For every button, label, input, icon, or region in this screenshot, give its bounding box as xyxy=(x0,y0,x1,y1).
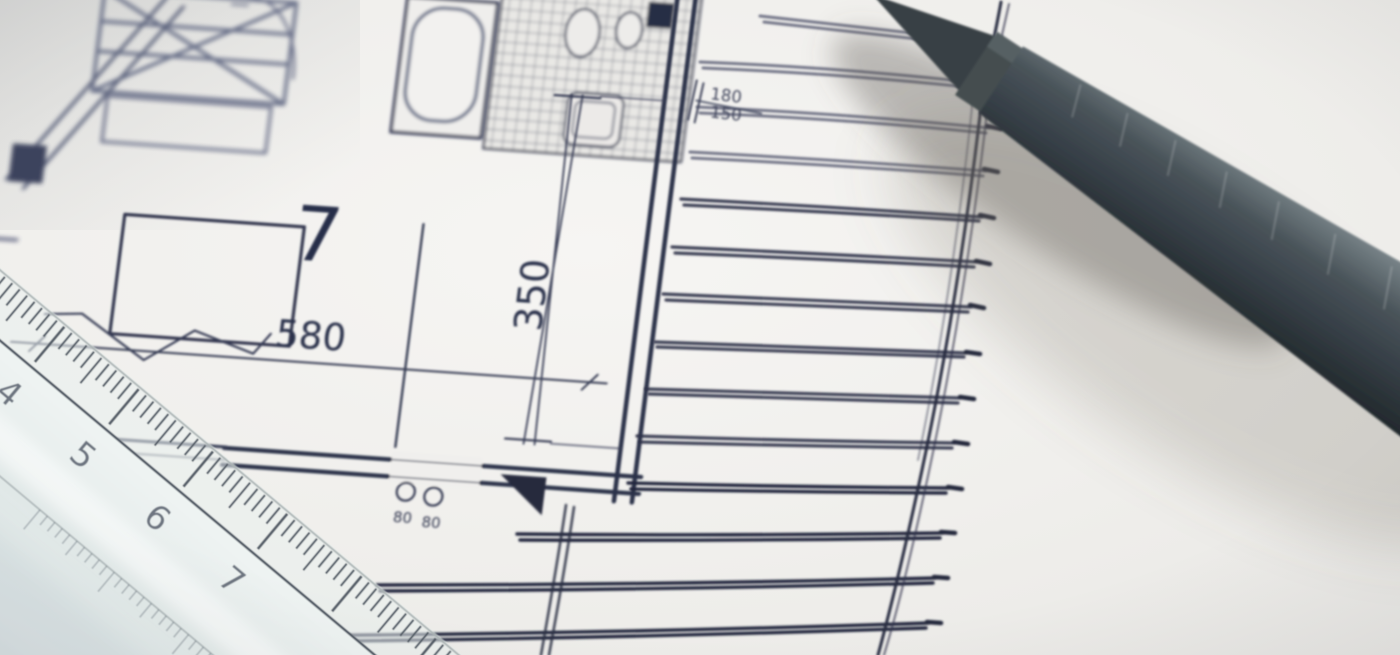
vignette xyxy=(0,0,1400,655)
photo-canvas: 80 80 580 7 350 xyxy=(0,0,1400,655)
photo: 80 80 580 7 350 xyxy=(0,0,1400,655)
